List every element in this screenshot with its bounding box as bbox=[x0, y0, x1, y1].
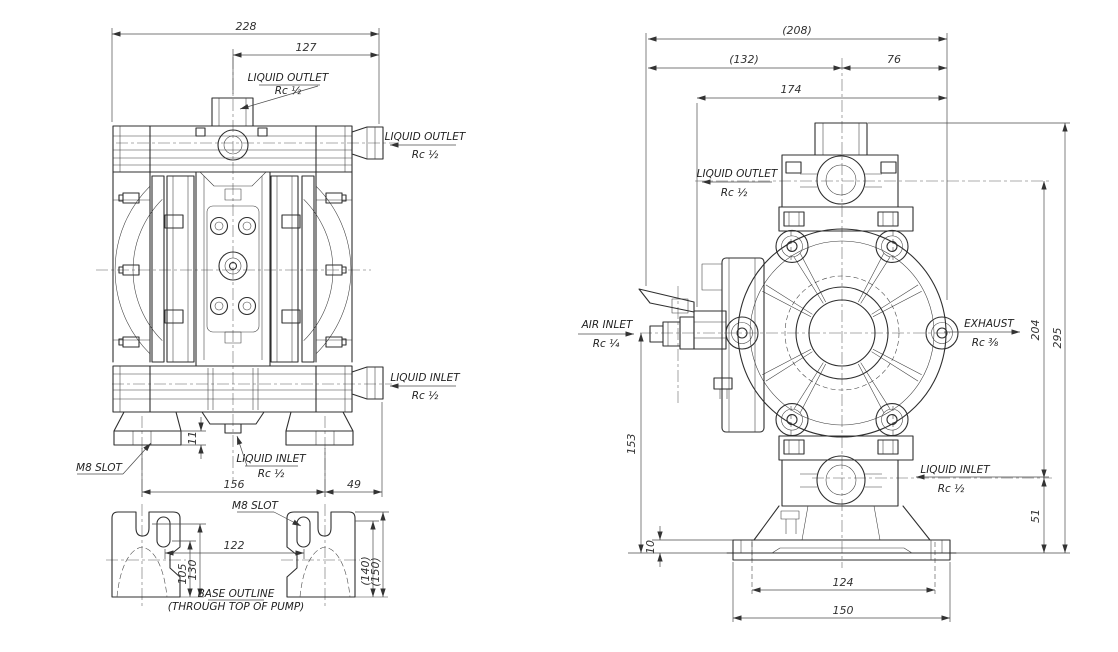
base-outline-view: 122 105 130 (140) (150) M8 SLOT BASE OUT… bbox=[106, 500, 389, 613]
label-base-m8-slot: M8 SLOT bbox=[232, 500, 280, 512]
label-front-top-liquid-outlet: LIQUID OUTLET bbox=[248, 72, 330, 84]
label-side-liquid-outlet-size: Rc ½ bbox=[721, 187, 748, 199]
side-port-labels: LIQUID OUTLET Rc ½ AIR INLET Rc ¼ EXHAUS… bbox=[578, 168, 1049, 495]
side-outlet-boss bbox=[817, 156, 865, 204]
label-side-liquid-outlet: LIQUID OUTLET bbox=[697, 168, 779, 180]
dim-side-174: 174 bbox=[781, 83, 802, 96]
base-plates bbox=[112, 512, 388, 597]
side-air-valve-assembly bbox=[639, 258, 764, 432]
dim-side-132: (132) bbox=[729, 53, 759, 66]
label-base-outline-title: BASE OUTLINE bbox=[198, 588, 275, 600]
dim-front-outlet-offset: 127 bbox=[296, 41, 317, 54]
label-front-bottom-liquid-inlet: LIQUID INLET bbox=[236, 453, 307, 465]
label-front-right-liquid-inlet: LIQUID INLET bbox=[390, 372, 461, 384]
label-side-liquid-inlet-size: Rc ½ bbox=[938, 483, 965, 495]
base-right-m8-slot bbox=[297, 517, 310, 547]
base-left-m8-slot bbox=[157, 517, 170, 547]
label-side-exhaust-size: Rc ⅜ bbox=[972, 337, 999, 349]
front-bottom-manifold bbox=[113, 366, 352, 433]
label-side-air-inlet-size: Rc ¼ bbox=[593, 338, 620, 350]
dim-side-208: (208) bbox=[782, 24, 812, 37]
dim-base-130: 130 bbox=[186, 560, 199, 581]
pump-dimensional-drawing: 228 127 156 49 11 LIQUID OUTLET Rc ½ LIQ… bbox=[0, 0, 1118, 652]
dim-front-foot-span: 156 bbox=[224, 478, 245, 491]
dim-base-150: (150) bbox=[369, 557, 382, 587]
dim-side-76: 76 bbox=[887, 53, 901, 66]
valve-handle bbox=[639, 289, 694, 312]
front-feet bbox=[114, 412, 353, 445]
dim-side-153: 153 bbox=[625, 434, 638, 455]
label-base-outline-subtitle: (THROUGH TOP OF PUMP) bbox=[168, 601, 305, 613]
front-side-casings bbox=[113, 172, 352, 362]
dim-front-foot-height: 11 bbox=[186, 431, 199, 445]
side-top-port-stack bbox=[779, 123, 913, 231]
dim-side-295: 295 bbox=[1051, 328, 1064, 349]
dim-side-150: 150 bbox=[833, 604, 854, 617]
front-top-port bbox=[212, 98, 253, 126]
base-dimensions: 122 105 130 (140) (150) bbox=[152, 512, 389, 597]
front-inlet-port-side bbox=[352, 367, 383, 399]
dim-base-slot-span: 122 bbox=[224, 539, 245, 552]
label-side-exhaust: EXHAUST bbox=[964, 318, 1015, 330]
base-labels: M8 SLOT BASE OUTLINE (THROUGH TOP OF PUM… bbox=[168, 500, 305, 613]
front-view: 228 127 156 49 11 LIQUID OUTLET Rc ½ LIQ… bbox=[76, 20, 467, 500]
dim-side-204: 204 bbox=[1029, 320, 1042, 341]
dim-front-total-width: 228 bbox=[236, 20, 257, 33]
muffler-plate bbox=[722, 258, 764, 432]
drawing-sheet: 228 127 156 49 11 LIQUID OUTLET Rc ½ LIQ… bbox=[0, 0, 1118, 652]
dim-side-124: 124 bbox=[833, 576, 854, 589]
dim-front-foot-to-inlet: 49 bbox=[347, 478, 361, 491]
side-bottom-port-stack bbox=[779, 436, 913, 506]
label-front-bottom-liquid-inlet-size: Rc ½ bbox=[258, 468, 285, 480]
label-front-right-liquid-outlet: LIQUID OUTLET bbox=[385, 131, 467, 143]
label-front-right-liquid-inlet-size: Rc ½ bbox=[412, 390, 439, 402]
air-valve-body bbox=[694, 311, 726, 349]
label-side-air-inlet: AIR INLET bbox=[581, 319, 634, 331]
side-inlet-boss bbox=[817, 456, 865, 504]
label-side-liquid-inlet: LIQUID INLET bbox=[920, 464, 991, 476]
label-front-right-liquid-outlet-size: Rc ½ bbox=[412, 149, 439, 161]
label-front-m8-slot: M8 SLOT bbox=[76, 462, 124, 474]
side-view: (208) (132) 76 174 295 204 51 153 10 124… bbox=[578, 24, 1070, 622]
dim-side-10: 10 bbox=[644, 540, 657, 554]
dim-side-51: 51 bbox=[1029, 509, 1042, 523]
side-base-plate bbox=[727, 540, 956, 560]
